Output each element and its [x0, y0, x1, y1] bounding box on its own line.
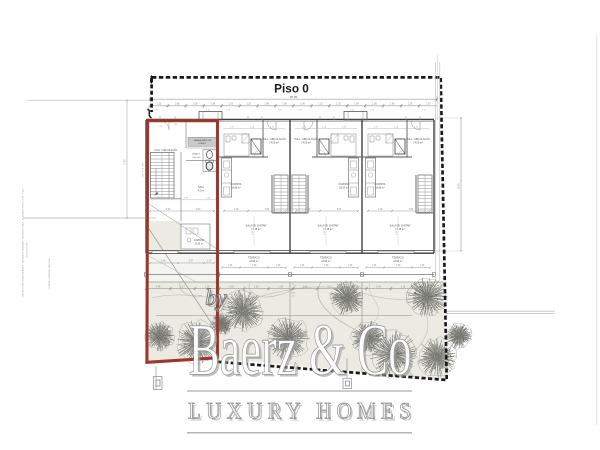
svg-text:HALL / CIRCULAÇÃO: HALL / CIRCULAÇÃO [155, 149, 178, 152]
svg-text:CLIENTE: QUINTA DO VALE LDA: CLIENTE: QUINTA DO VALE LDA [48, 258, 51, 289]
svg-text:LUXURY HOMES: LUXURY HOMES [188, 399, 416, 424]
svg-text:SALA: SALA [198, 186, 204, 189]
svg-text:1.40: 1.40 [234, 209, 239, 211]
svg-text:20.00: 20.00 [290, 95, 298, 99]
svg-text:10.80 m²: 10.80 m² [321, 260, 331, 263]
svg-text:1.40: 1.40 [324, 265, 329, 267]
svg-text:18.60 m²: 18.60 m² [375, 186, 385, 189]
svg-text:3.05: 3.05 [265, 209, 270, 211]
svg-text:3.05: 3.05 [409, 209, 414, 211]
svg-text:1.98: 1.98 [211, 104, 216, 106]
svg-text:1.16: 1.16 [401, 286, 406, 288]
svg-text:1.35: 1.35 [278, 286, 283, 288]
svg-text:1.20: 1.20 [318, 104, 323, 106]
svg-text:1.20: 1.20 [246, 104, 251, 106]
svg-text:1.20: 1.20 [426, 104, 431, 106]
svg-text:1.16: 1.16 [372, 265, 377, 267]
svg-text:2.42 m²: 2.42 m² [192, 156, 200, 159]
svg-text:PROJECTO DE LICENCIAMENTO - MO: PROJECTO DE LICENCIAMENTO - MORADIAS EM … [22, 188, 25, 297]
svg-text:1.35: 1.35 [425, 286, 430, 288]
svg-text:1.08: 1.08 [193, 104, 198, 106]
svg-text:1.08: 1.08 [372, 104, 377, 106]
svg-text:2.48: 2.48 [303, 286, 308, 288]
svg-text:2.80 0.30 2.80: 2.80 0.30 2.80 [143, 162, 145, 178]
svg-text:SUBILIT: SUBILIT [198, 143, 207, 145]
svg-text:1.16: 1.16 [420, 265, 425, 267]
svg-text:1.98: 1.98 [354, 104, 359, 106]
svg-text:GANHA MAIS UM: GANHA MAIS UM [194, 139, 212, 142]
svg-text:17.75 m²: 17.75 m² [395, 228, 405, 231]
svg-text:1.98: 1.98 [390, 104, 395, 106]
svg-text:1.98: 1.98 [175, 104, 180, 106]
svg-text:1.10: 1.10 [352, 286, 357, 288]
svg-text:18.60 m²: 18.60 m² [231, 186, 241, 189]
svg-text:14.00 m²: 14.00 m² [301, 141, 311, 144]
svg-text:9.60: 9.60 [457, 183, 461, 189]
svg-text:2.60: 2.60 [196, 209, 201, 211]
svg-text:2.48: 2.48 [161, 260, 166, 262]
svg-text:10.80 m²: 10.80 m² [249, 260, 259, 263]
svg-text:2.17: 2.17 [180, 286, 185, 288]
svg-text:1.08: 1.08 [282, 104, 287, 106]
svg-text:COZINHA: COZINHA [194, 239, 205, 242]
svg-text:1.35: 1.35 [408, 104, 413, 106]
svg-text:13.45 m²: 13.45 m² [194, 242, 203, 245]
svg-text:18.60 m²: 18.60 m² [339, 186, 349, 189]
svg-text:1.10: 1.10 [207, 260, 212, 262]
svg-text:ARQUITECTURA: ARQUITECTURA [26, 242, 29, 258]
svg-text:CHADO: CHADO [192, 153, 200, 156]
svg-text:by: by [205, 285, 228, 310]
svg-text:1.40: 1.40 [229, 286, 234, 288]
svg-text:1.35: 1.35 [229, 104, 234, 106]
svg-text:3.05: 3.05 [337, 209, 342, 211]
svg-text:1.95: 1.95 [166, 209, 171, 211]
svg-text:1.98: 1.98 [300, 104, 305, 106]
svg-text:1.40: 1.40 [378, 209, 383, 211]
svg-text:1.98: 1.98 [264, 104, 269, 106]
svg-text:Piso 0: Piso 0 [274, 81, 309, 95]
svg-text:1.16: 1.16 [276, 265, 281, 267]
svg-text:10.80 m²: 10.80 m² [393, 260, 403, 263]
svg-text:2.37: 2.37 [189, 260, 194, 262]
svg-text:1.16: 1.16 [228, 265, 233, 267]
svg-text:7.30: 7.30 [123, 159, 127, 165]
svg-text:14.00 m²: 14.00 m² [413, 141, 423, 144]
svg-text:1.35: 1.35 [336, 104, 341, 106]
svg-text:1.40: 1.40 [306, 209, 311, 211]
svg-text:14.00 m²: 14.00 m² [269, 141, 279, 144]
svg-text:17.75 m²: 17.75 m² [251, 228, 261, 231]
svg-text:2.17: 2.17 [327, 286, 332, 288]
svg-text:1.35: 1.35 [157, 104, 162, 106]
svg-text:17.75 m²: 17.75 m² [323, 228, 333, 231]
svg-text:1.16: 1.16 [300, 265, 305, 267]
svg-text:1.40: 1.40 [396, 265, 401, 267]
svg-text:4.2 m²: 4.2 m² [198, 189, 205, 192]
svg-text:1.16: 1.16 [348, 265, 353, 267]
svg-text:Baerz & Co: Baerz & Co [189, 310, 412, 392]
svg-text:1.16: 1.16 [254, 286, 259, 288]
svg-text:2.48: 2.48 [156, 286, 161, 288]
svg-text:VAO: VAO [174, 123, 179, 126]
svg-text:1.40: 1.40 [376, 286, 381, 288]
svg-text:1.40: 1.40 [252, 265, 257, 267]
